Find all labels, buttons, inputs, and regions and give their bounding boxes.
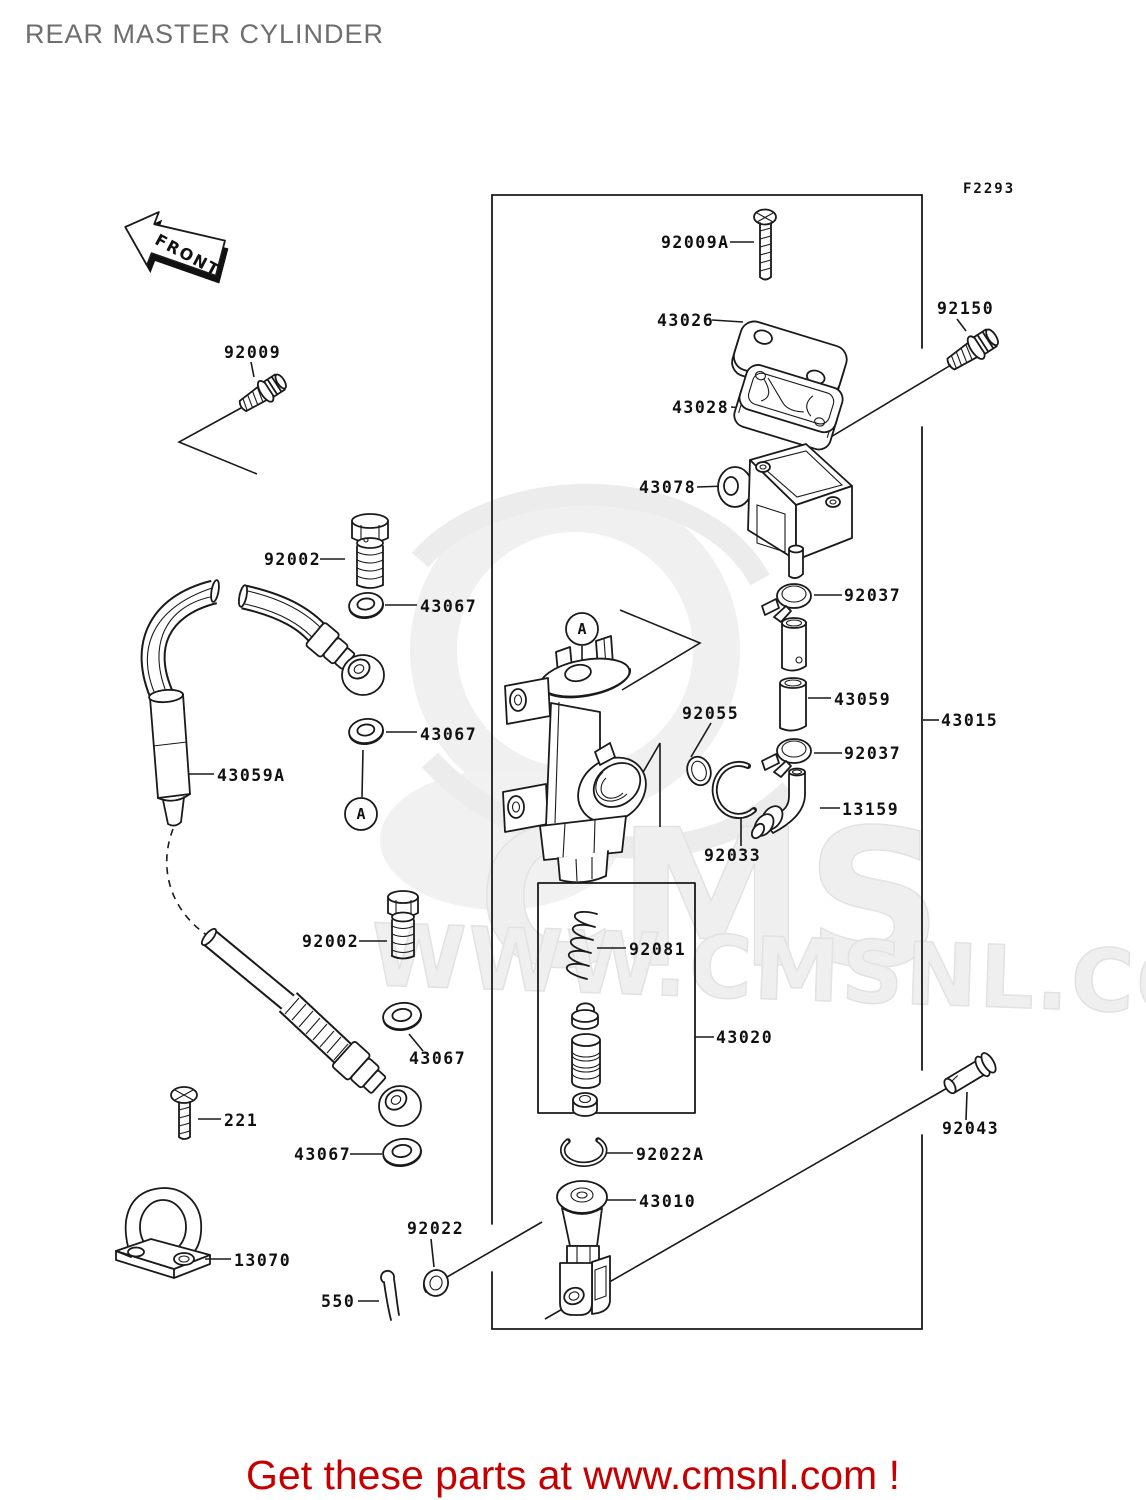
detail-marker-a1: A: [566, 613, 598, 645]
part-43059-tube-upper: [782, 618, 806, 671]
parts-fiche-page: CMS WWW.CMSNL.COM REAR MASTER CYLINDER F…: [0, 0, 1146, 1500]
part-label-92009: 92009: [224, 343, 281, 362]
detail-marker-a1-label: A: [577, 620, 586, 638]
part-92043-pin: [940, 1051, 998, 1098]
part-92009-bolt: [235, 370, 290, 418]
part-label-92002-a: 92002: [264, 550, 321, 569]
part-piston: [572, 1034, 600, 1088]
cms-watermark: CMS WWW.CMSNL.COM: [369, 485, 1146, 1038]
part-92150-bolt: [942, 324, 1002, 376]
part-92002-banjo-bolt-upper: [352, 514, 388, 588]
part-92009A-screw: [754, 210, 776, 280]
part-label-92037-b: 92037: [844, 744, 901, 763]
part-label-43015: 43015: [941, 711, 998, 730]
figure-code: F2293: [963, 181, 1015, 197]
part-label-43067-b: 43067: [420, 725, 477, 744]
part-label-221: 221: [224, 1111, 258, 1130]
part-label-43067-a: 43067: [420, 597, 477, 616]
part-43067-washer-d: [381, 1136, 422, 1168]
part-43059-tube-lower: [780, 678, 806, 731]
part-550-cotter-pin: [381, 1271, 399, 1320]
part-label-92022: 92022: [407, 1219, 464, 1238]
part-label-43078: 43078: [639, 478, 696, 497]
part-label-92037-a: 92037: [844, 586, 901, 605]
front-direction-arrow: FRONT: [113, 203, 235, 298]
part-label-43010: 43010: [639, 1192, 696, 1211]
part-43067-washer-b: [347, 717, 384, 746]
part-label-92002-b: 92002: [302, 932, 359, 951]
part-label-550: 550: [321, 1292, 355, 1311]
part-label-92043: 92043: [942, 1119, 999, 1138]
part-label-92022A: 92022A: [636, 1145, 705, 1164]
part-label-13070: 13070: [234, 1251, 291, 1270]
part-92022-washer: [421, 1267, 451, 1298]
part-reservoir-spigot: [789, 546, 803, 579]
part-label-13159: 13159: [842, 800, 899, 819]
part-label-43020: 43020: [716, 1028, 773, 1047]
part-label-43059A: 43059A: [217, 766, 286, 785]
part-label-43067-c: 43067: [409, 1049, 466, 1068]
part-label-43067-d: 43067: [294, 1145, 351, 1164]
page-title: REAR MASTER CYLINDER: [25, 19, 384, 49]
part-43067-washer-a: [347, 591, 384, 620]
part-43010-pushrod: [557, 1181, 610, 1315]
part-label-92081: 92081: [629, 940, 686, 959]
part-43059A-hose: [147, 580, 421, 1126]
footer-store-link[interactable]: Get these parts at www.cmsnl.com !: [246, 1452, 900, 1498]
detail-marker-a2: A: [345, 798, 377, 830]
part-label-43026: 43026: [657, 311, 714, 330]
part-label-92033: 92033: [704, 846, 761, 865]
part-label-43059: 43059: [834, 690, 891, 709]
part-label-92009A: 92009A: [661, 233, 730, 252]
part-13070-bracket: [116, 1188, 210, 1278]
part-label-92150: 92150: [937, 299, 994, 318]
watermark-site-text: WWW.CMSNL.COM: [369, 906, 1146, 1038]
part-92037-clamp-a: [762, 584, 811, 622]
parts-diagram: CMS WWW.CMSNL.COM REAR MASTER CYLINDER F…: [0, 0, 1146, 1500]
part-221-screw: [171, 1087, 197, 1139]
part-label-43028: 43028: [672, 398, 729, 417]
part-piston-seal: [573, 1093, 597, 1116]
part-92022A-snap-ring: [563, 1140, 605, 1164]
detail-marker-a2-label: A: [356, 805, 365, 823]
part-label-92055: 92055: [682, 704, 739, 723]
